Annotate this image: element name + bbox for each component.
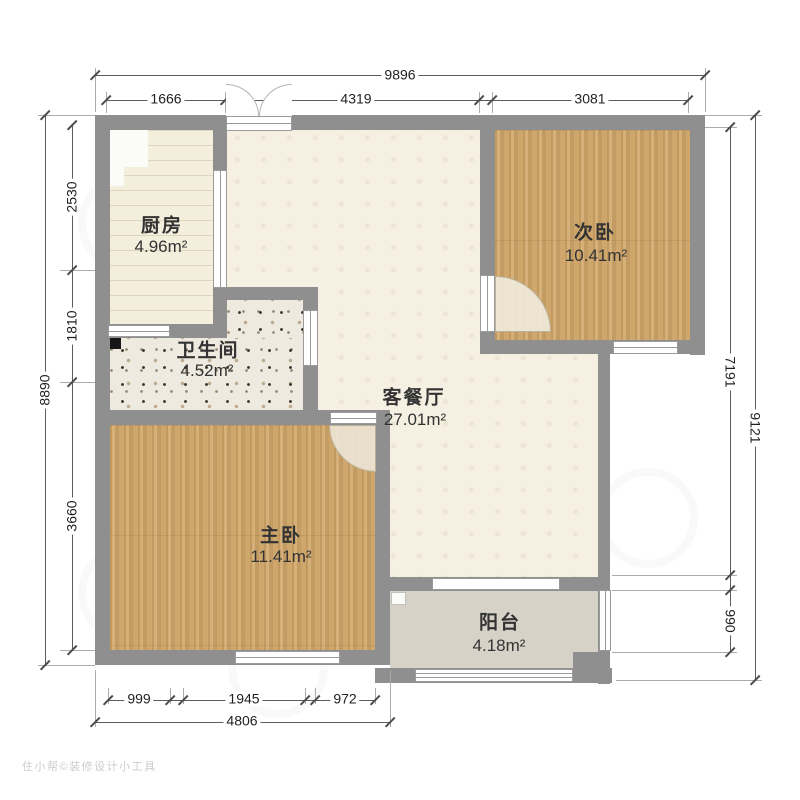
- kitchen-area: 4.96m²: [135, 237, 188, 257]
- extension-line: [688, 92, 689, 113]
- kitchen-pass-window: [108, 325, 170, 337]
- extension-line: [170, 688, 171, 704]
- bathroom-floor-upper: [227, 300, 303, 338]
- extension-line: [479, 92, 480, 113]
- wall-bathroom-top: [227, 287, 318, 300]
- dim-right-total: 9121: [747, 409, 762, 446]
- wall-right-upper: [690, 115, 705, 355]
- kitchen-sliding-door: [213, 170, 227, 288]
- wall-master-right: [375, 410, 390, 665]
- extension-line: [375, 688, 376, 704]
- bathroom-area: 4.52m²: [181, 361, 234, 381]
- dim-left-seg-2: 1810: [64, 307, 79, 344]
- master-bedroom-label: 主卧: [260, 521, 302, 548]
- extension-line: [108, 688, 109, 704]
- dim-bottom-seg-3: 972: [330, 691, 359, 706]
- watermark-text: 住小帮©装修设计小工具: [22, 758, 157, 774]
- extension-line: [612, 590, 737, 591]
- second-bedroom-window: [613, 341, 678, 354]
- entry-door-arc-right: [259, 84, 292, 116]
- living-dining-label: 客餐厅: [382, 383, 445, 410]
- extension-line: [38, 665, 95, 666]
- dim-right-seg-2: 990: [722, 606, 737, 635]
- second-bedroom-door-panel: [480, 275, 495, 332]
- entry-door-arc-left: [226, 84, 259, 116]
- balcony-column: [391, 592, 406, 605]
- extension-line: [38, 115, 95, 116]
- extension-line: [60, 270, 95, 271]
- second-bedroom-area: 10.41m²: [565, 246, 627, 266]
- kitchen-counter: [110, 130, 148, 167]
- wall-left: [95, 115, 110, 665]
- bathroom-label: 卫生间: [176, 336, 239, 363]
- dim-right-seg-1: 7191: [722, 353, 737, 390]
- dim-left-seg-3: 3660: [64, 497, 79, 534]
- extension-line: [612, 575, 737, 576]
- extension-line: [492, 92, 493, 113]
- wall-top: [95, 115, 705, 130]
- dim-top-seg-2: 4319: [337, 91, 374, 106]
- extension-line: [60, 382, 95, 383]
- balcony-side-window: [599, 590, 611, 651]
- kitchen-label: 厨房: [141, 211, 183, 238]
- entry-door-panel: [226, 116, 292, 131]
- extension-line: [612, 652, 737, 653]
- dim-left-total: 8890: [37, 371, 52, 408]
- dim-top-seg-3: 3081: [571, 91, 608, 106]
- floorplan-canvas: 厨房 4.96m² 卫生间 4.52m² 客餐厅 27.01m² 次卧 10.4…: [0, 0, 800, 800]
- balcony-sliding-door: [432, 578, 560, 590]
- extension-line: [60, 650, 95, 651]
- dim-bottom-seg-1: 999: [124, 691, 153, 706]
- second-bedroom-label: 次卧: [574, 218, 616, 245]
- extension-line: [183, 688, 184, 704]
- dim-top-total: 9896: [381, 67, 418, 82]
- kitchen-counter-step: [110, 167, 124, 186]
- dim-top-seg-1: 1666: [147, 91, 184, 106]
- dim-bottom-total: 4806: [223, 713, 260, 728]
- master-bedroom-window: [235, 651, 340, 664]
- dim-left-seg-1: 2530: [64, 178, 79, 215]
- master-bedroom-door-panel: [330, 412, 377, 424]
- bathroom-sliding-door: [303, 310, 318, 366]
- extension-line: [106, 92, 107, 113]
- balcony-area: 4.18m²: [473, 636, 526, 656]
- living-dining-area: 27.01m²: [384, 410, 446, 430]
- dim-bottom-seg-2: 1945: [225, 691, 262, 706]
- balcony-bottom-window: [415, 669, 573, 682]
- watermark-circle: [598, 468, 698, 568]
- extension-line: [315, 688, 316, 704]
- balcony-label: 阳台: [479, 608, 521, 635]
- extension-line: [616, 680, 762, 681]
- dim-line-right-total: [755, 115, 756, 680]
- master-bedroom-area: 11.41m²: [250, 547, 311, 567]
- extension-line: [705, 127, 737, 128]
- extension-line: [305, 688, 306, 704]
- master-bedroom-floor: [110, 425, 375, 650]
